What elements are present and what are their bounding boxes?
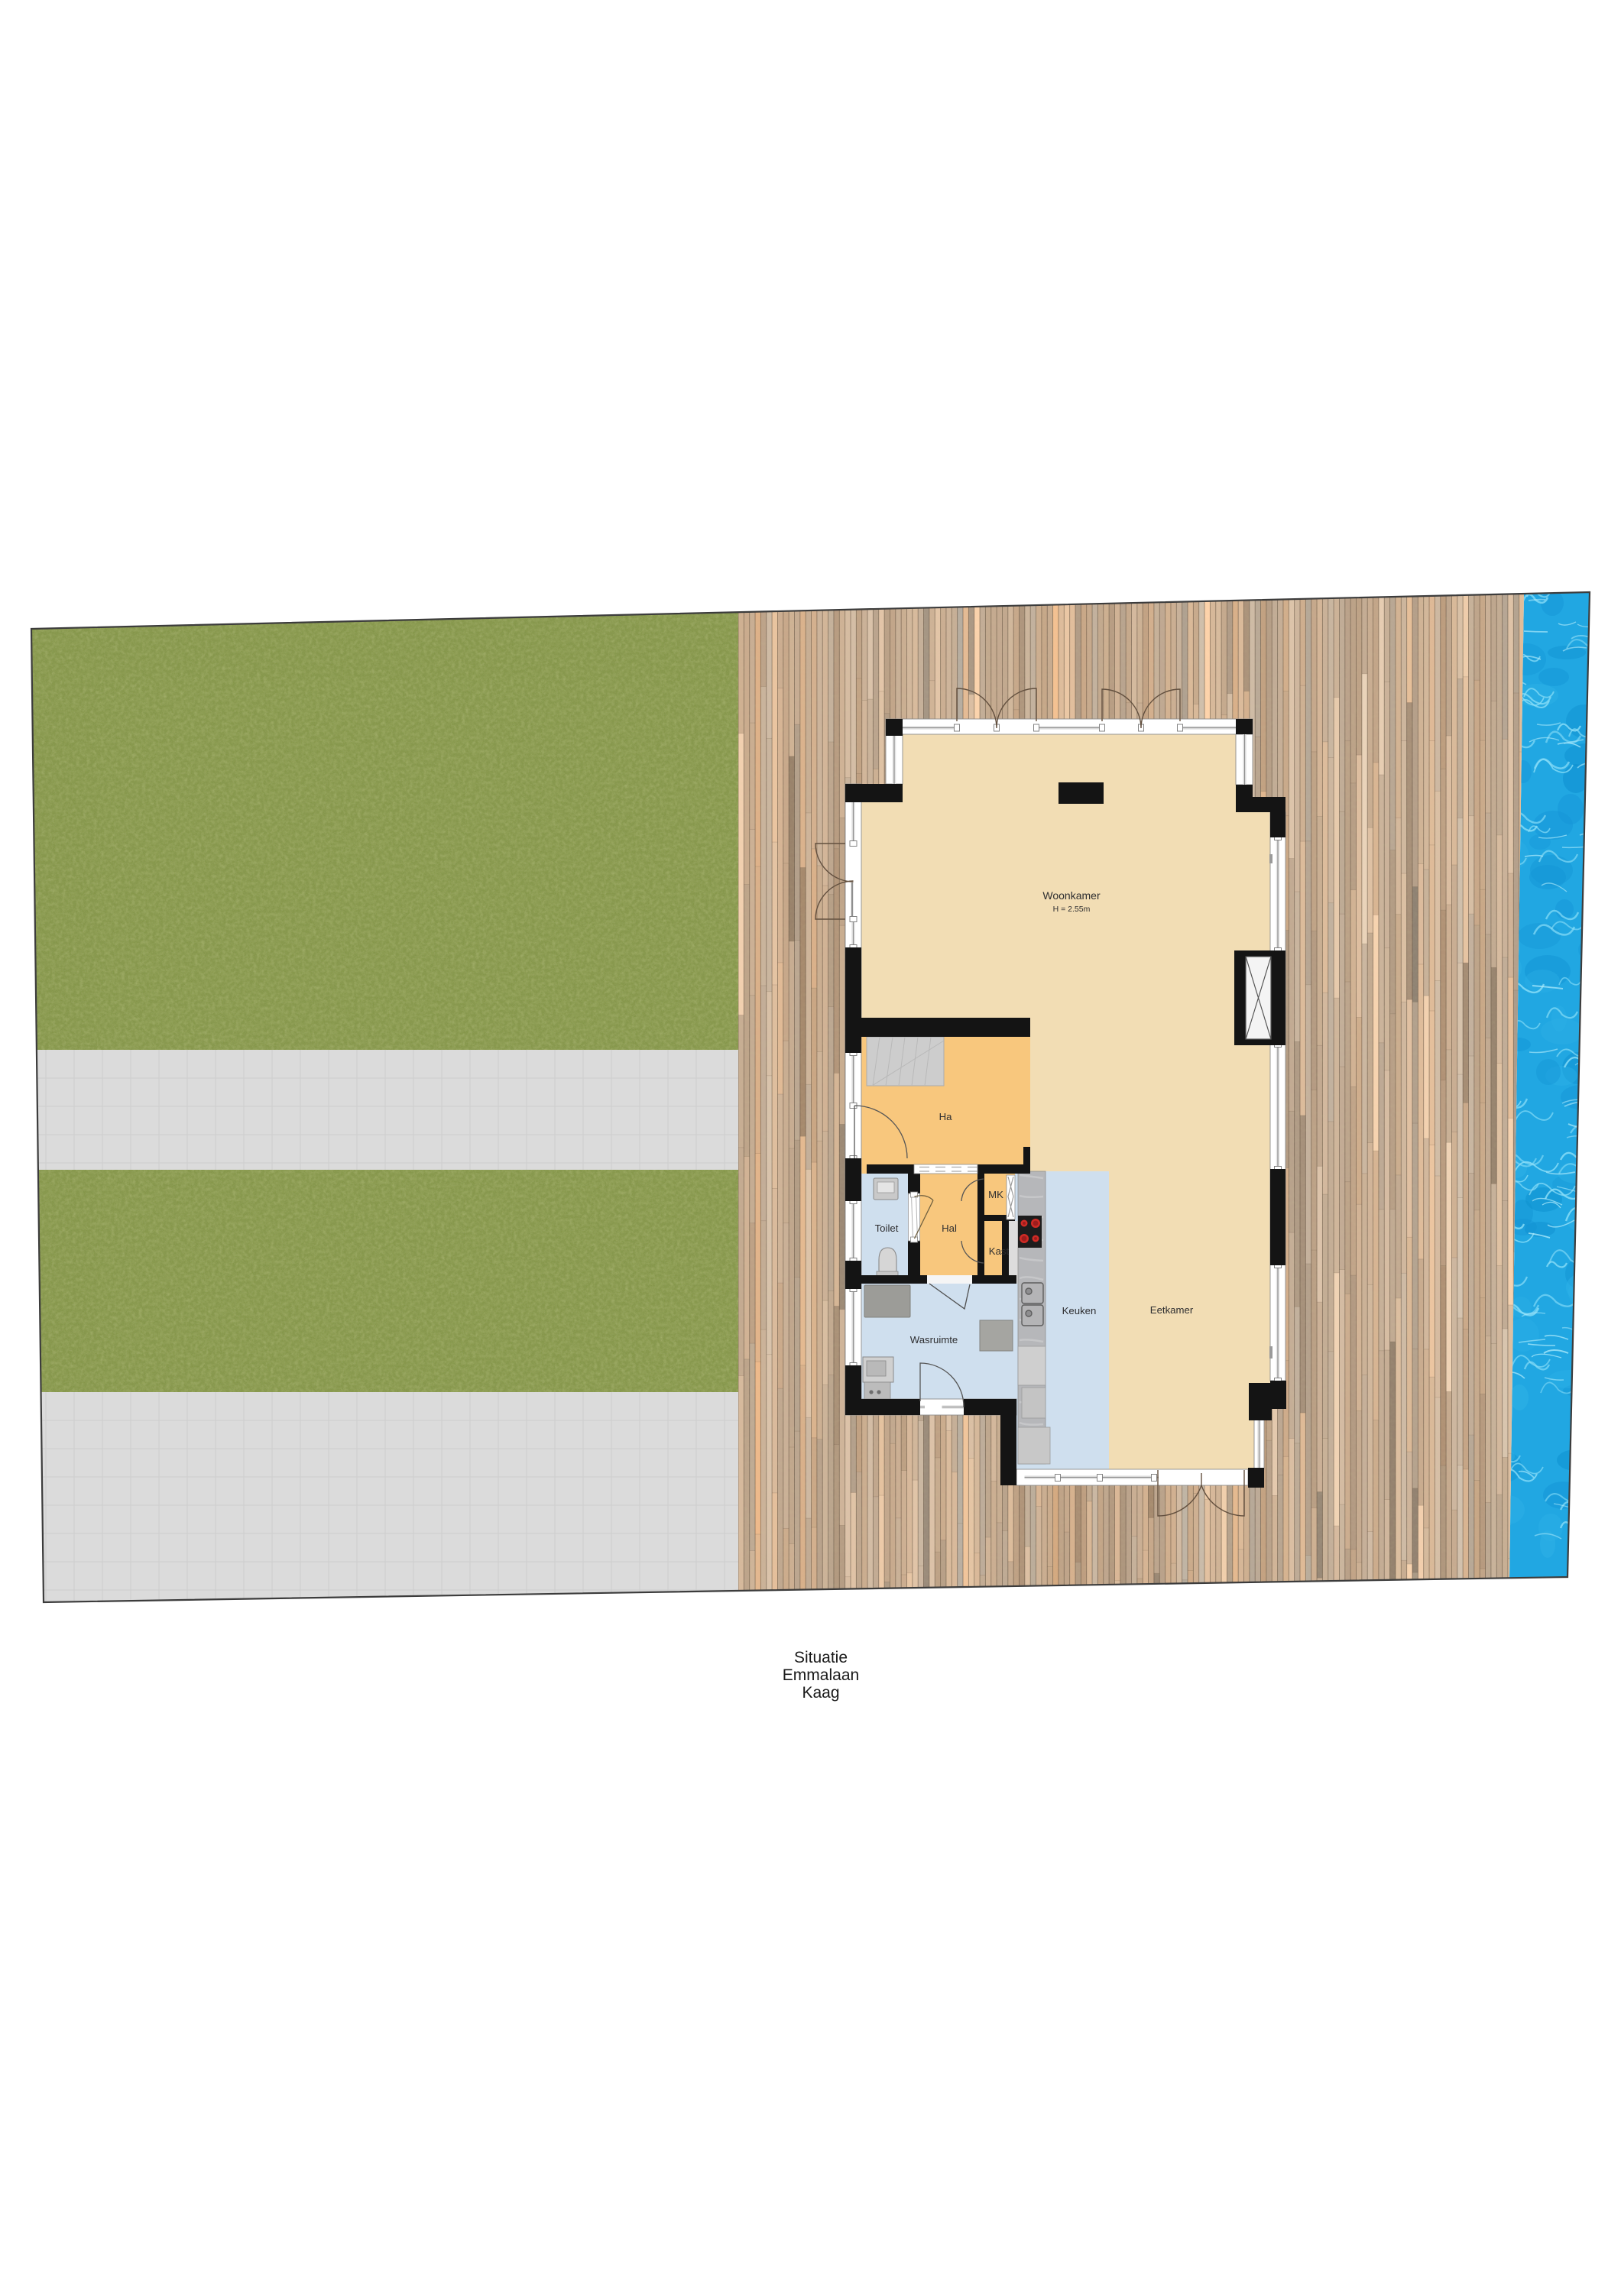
svg-text:Hal: Hal (942, 1222, 957, 1234)
svg-text:Eetkamer: Eetkamer (1150, 1304, 1194, 1316)
svg-text:Keuken: Keuken (1062, 1305, 1097, 1316)
svg-text:Kaag: Kaag (802, 1684, 839, 1702)
svg-text:Toilet: Toilet (875, 1222, 899, 1234)
svg-text:Wasruimte: Wasruimte (910, 1334, 958, 1346)
svg-text:MK: MK (988, 1189, 1003, 1200)
svg-text:Ha: Ha (939, 1111, 953, 1122)
svg-text:Kast: Kast (989, 1245, 1010, 1257)
svg-text:Woonkamer: Woonkamer (1042, 889, 1101, 902)
svg-text:Situatie: Situatie (794, 1649, 848, 1666)
svg-text:H = 2.55m: H = 2.55m (1053, 905, 1091, 914)
svg-text:Emmalaan: Emmalaan (783, 1666, 859, 1684)
